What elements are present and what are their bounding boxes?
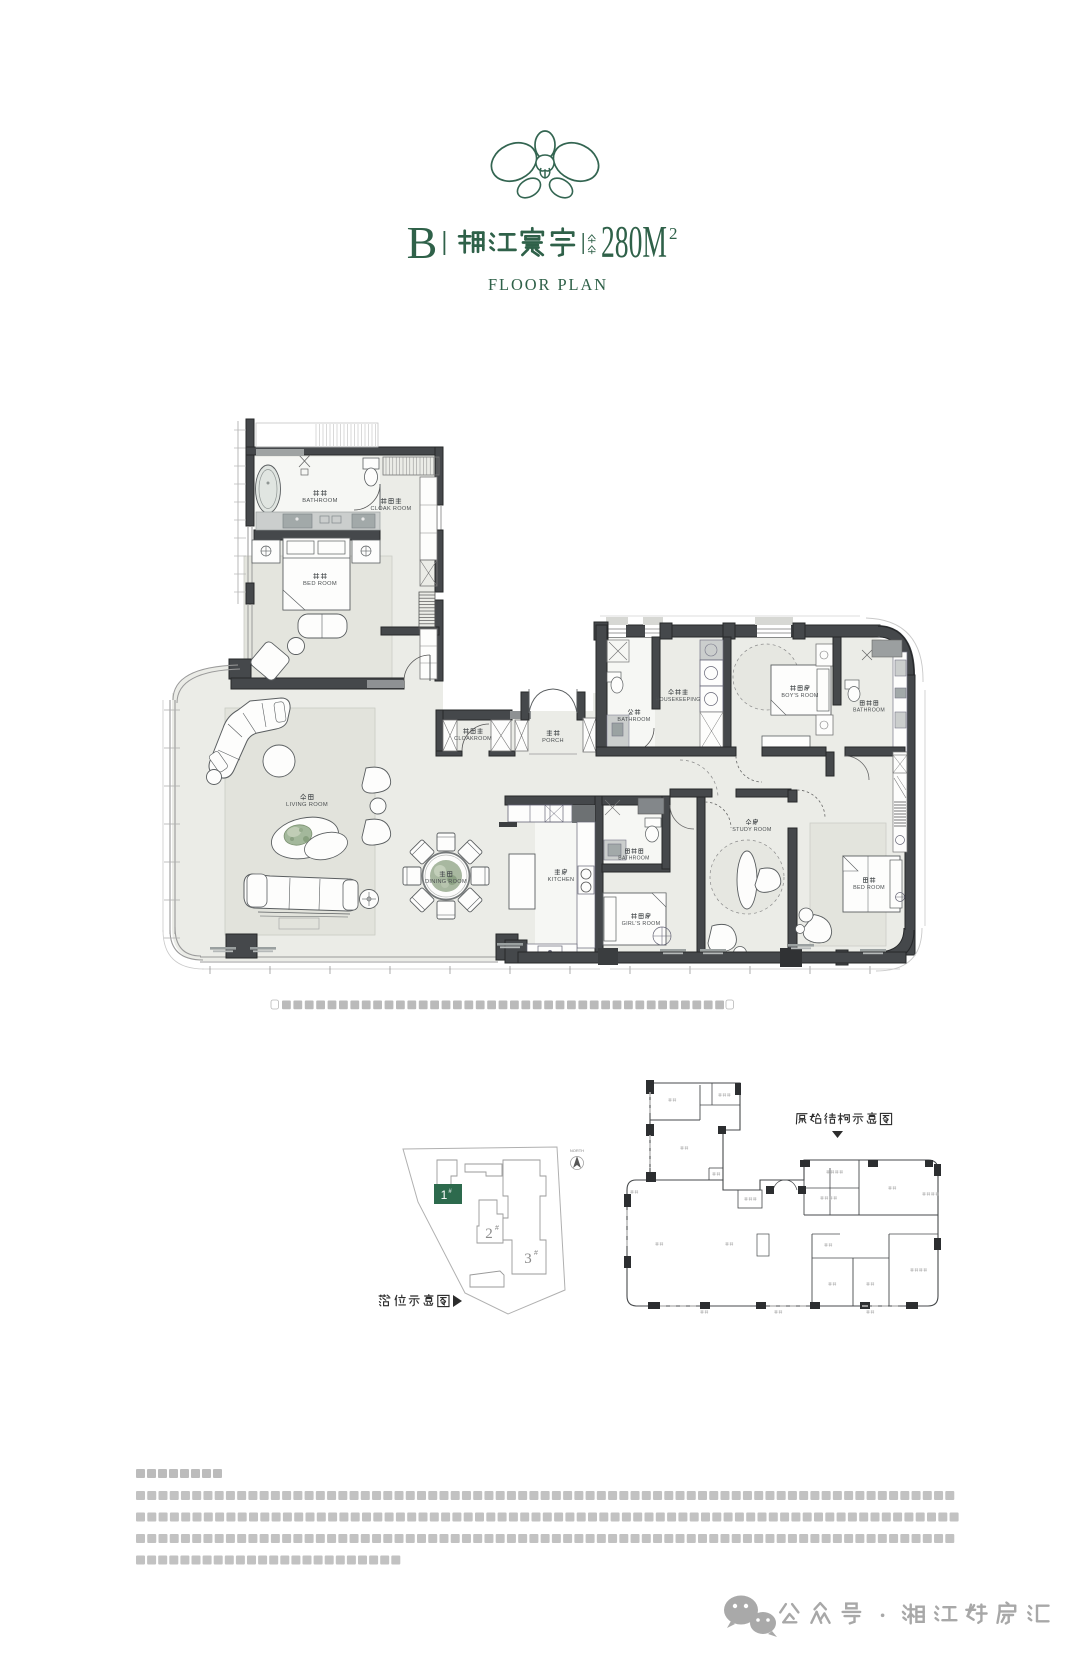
svg-text:BATHROOM: BATHROOM: [618, 856, 649, 862]
svg-text:NORTH: NORTH: [570, 1148, 584, 1153]
svg-text:#: #: [495, 1225, 499, 1232]
svg-text:B: B: [407, 217, 438, 268]
svg-text:BATHROOM: BATHROOM: [302, 498, 337, 504]
svg-text:PORCH: PORCH: [542, 738, 564, 744]
svg-text:1: 1: [441, 1188, 448, 1202]
svg-text:KITCHEN: KITCHEN: [548, 877, 575, 883]
svg-text:2: 2: [669, 224, 678, 243]
svg-text:2: 2: [485, 1226, 493, 1242]
svg-text:LIVING ROOM: LIVING ROOM: [286, 802, 328, 808]
svg-text:280M: 280M: [601, 217, 667, 267]
svg-text:BED ROOM: BED ROOM: [853, 885, 885, 891]
svg-text:BOY'S ROOM: BOY'S ROOM: [781, 693, 818, 699]
svg-text:3: 3: [524, 1251, 532, 1267]
svg-text:FLOOR PLAN: FLOOR PLAN: [488, 275, 608, 294]
svg-text:CLOAK ROOM: CLOAK ROOM: [371, 506, 412, 512]
svg-text:#: #: [534, 1250, 538, 1257]
svg-text:DINING ROOM: DINING ROOM: [425, 879, 467, 885]
svg-text:BED ROOM: BED ROOM: [303, 581, 337, 587]
svg-text:GIRL'S ROOM: GIRL'S ROOM: [622, 921, 661, 927]
svg-text:CLOAKROOM: CLOAKROOM: [454, 736, 492, 742]
svg-text:BATHROOM: BATHROOM: [853, 708, 885, 714]
svg-text:STUDY ROOM: STUDY ROOM: [732, 827, 772, 833]
svg-text:BATHROOM: BATHROOM: [617, 717, 650, 723]
svg-text:HOUSEKEEPING: HOUSEKEEPING: [655, 697, 700, 703]
